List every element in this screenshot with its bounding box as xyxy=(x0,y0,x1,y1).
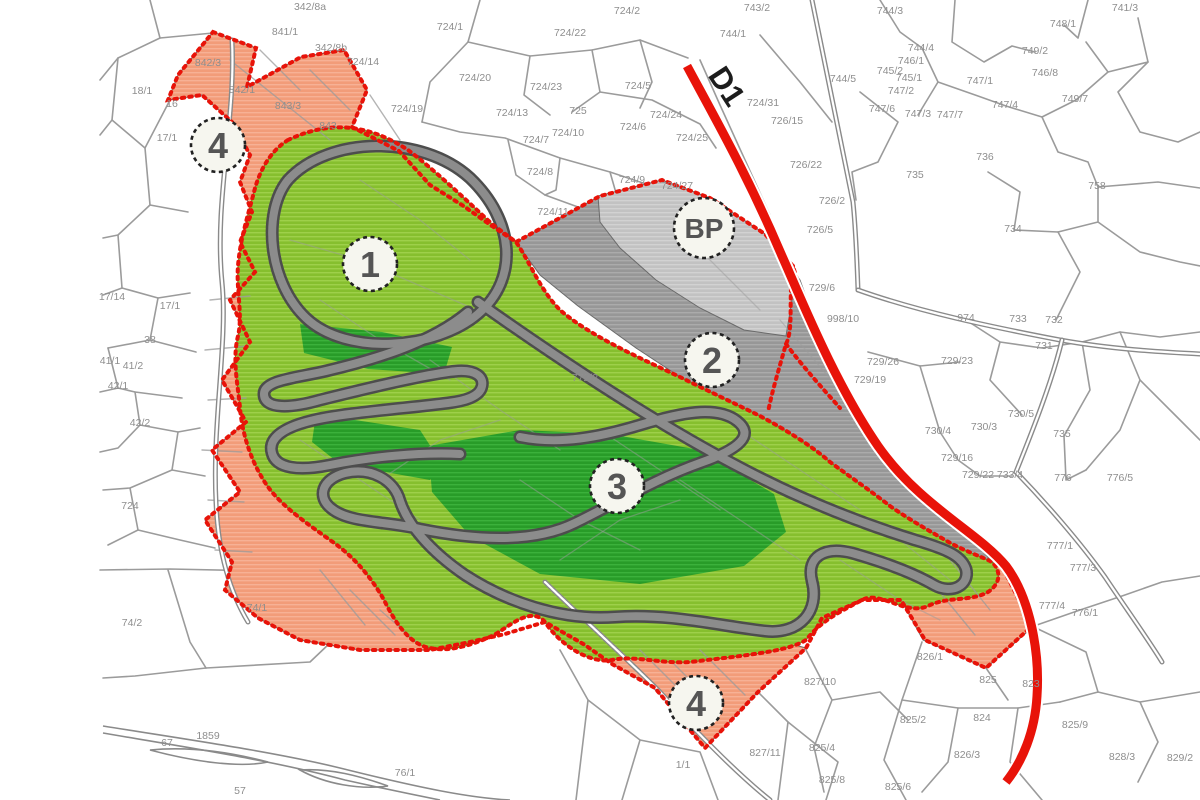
zone-marker-label: 4 xyxy=(208,125,228,166)
parcel-label: 724/10 xyxy=(552,127,584,139)
parcel-label: 747/4 xyxy=(992,99,1018,111)
parcel-label: 342/8b xyxy=(315,42,347,54)
parcel-label: 729/16 xyxy=(941,452,973,464)
parcel-label: 724/8 xyxy=(527,166,553,178)
parcel-label: 777/3 xyxy=(1070,562,1096,574)
parcel-label: 17/1 xyxy=(157,132,178,144)
zone-marker-4: 4 xyxy=(669,676,723,730)
parcel-label: 824 xyxy=(973,712,991,724)
parcel-label: 730/5 xyxy=(1008,408,1034,420)
parcel-label: 726/5 xyxy=(807,224,833,236)
parcel-label: 729/26 xyxy=(867,356,899,368)
parcel-label: 741/3 xyxy=(1112,2,1138,14)
parcel-label: 725 xyxy=(569,105,587,117)
parcel-label: 998/10 xyxy=(827,313,859,325)
parcel-label: 342/8a xyxy=(294,1,326,13)
parcel-label: 747/6 xyxy=(869,103,895,115)
parcel-label: 726/2 xyxy=(819,195,845,207)
parcel-label: 724/13 xyxy=(496,107,528,119)
zone-marker-label: 4 xyxy=(686,683,706,724)
parcel-label: 724/9 xyxy=(619,174,645,186)
parcel-label: 776/5 xyxy=(1107,472,1133,484)
parcel-label: 776 xyxy=(1054,472,1072,484)
parcel-label: 724/1 xyxy=(437,21,463,33)
parcel-label: 827/11 xyxy=(749,747,780,759)
parcel-label: 1/1 xyxy=(676,759,691,771)
parcel-label: 744/3 xyxy=(877,5,903,17)
parcel-label: 735 xyxy=(1053,428,1071,440)
parcel-label: 734 xyxy=(1004,223,1022,235)
parcel-label: 724/20 xyxy=(459,72,491,84)
parcel-label: 826/1 xyxy=(917,651,943,663)
parcel-label: 747/2 xyxy=(888,85,914,97)
parcel-label: 825 xyxy=(979,674,997,686)
parcel-label: 41/2 xyxy=(123,360,144,372)
zone-marker-label: BP xyxy=(685,213,724,244)
parcel-label: 76/1 xyxy=(395,767,416,779)
parcel-label: 724/6 xyxy=(620,121,646,133)
zone-marker-3: 3 xyxy=(590,459,644,513)
zone-marker-bp: BP xyxy=(674,198,734,258)
parcel-label: 823 xyxy=(1022,678,1040,690)
parcel-label: 735 xyxy=(906,169,924,181)
parcel-label: 736 xyxy=(976,151,994,163)
cadastral-map: 342/8a342/8b841/1724/1418/1842/3842/1843… xyxy=(0,0,1200,800)
parcel-label: 74/1 xyxy=(247,602,268,614)
parcel-label: 758 xyxy=(1088,180,1106,192)
parcel-label: 724/11 xyxy=(537,206,568,218)
parcel-label: 825/8 xyxy=(819,774,845,786)
parcel-label: 747/7 xyxy=(937,109,963,121)
parcel-label: 724/5 xyxy=(625,80,651,92)
parcel-label: 730/4 xyxy=(925,425,951,437)
parcel-label: 828/3 xyxy=(1109,751,1135,763)
parcel-label: 749/2 xyxy=(1022,45,1048,57)
parcel-label: 843/3 xyxy=(275,100,301,112)
parcel-label: 74/2 xyxy=(122,617,143,629)
parcel-label: 729/23 xyxy=(941,355,973,367)
parcel-label: 1859 xyxy=(196,730,220,742)
parcel-label: 724/2 xyxy=(614,5,640,17)
parcel-label: 745/1 xyxy=(896,72,922,84)
parcel-label: 733/4 xyxy=(997,469,1023,481)
parcel-label: 729/6 xyxy=(809,282,835,294)
parcel-label: 724/19 xyxy=(391,103,423,115)
map-canvas: 342/8a342/8b841/1724/1418/1842/3842/1843… xyxy=(0,0,1200,800)
parcel-label: 730/3 xyxy=(971,421,997,433)
parcel-label: 748/1 xyxy=(1050,18,1076,30)
parcel-label: 726/15 xyxy=(771,115,803,127)
parcel-label: 726/22 xyxy=(790,159,822,171)
parcel-label: 776/1 xyxy=(1072,607,1098,619)
parcel-label: 724/7 xyxy=(523,134,549,146)
parcel-label: 731 xyxy=(1035,340,1053,352)
parcel-label: 829/2 xyxy=(1167,752,1193,764)
parcel-label: 842/3 xyxy=(195,57,221,69)
parcel-label: 57 xyxy=(234,785,246,797)
parcel-label: 724/25 xyxy=(676,132,708,144)
parcel-label: 724/14 xyxy=(347,56,379,68)
zone-marker-4: 4 xyxy=(191,118,245,172)
parcel-label: 42/1 xyxy=(108,380,129,392)
parcel-label: 825/6 xyxy=(885,781,911,793)
parcel-label: 724/22 xyxy=(554,27,586,39)
parcel-label: 825/4 xyxy=(809,742,835,754)
parcel-label: 729/22 xyxy=(962,469,994,481)
parcel-label: 842/1 xyxy=(229,84,255,96)
parcel-label: 747/3 xyxy=(905,108,931,120)
parcel-label: 772/2 xyxy=(572,372,598,384)
parcel-label: 733 xyxy=(1009,313,1027,325)
parcel-label: 827/10 xyxy=(804,676,836,688)
parcel-label: 724/31 xyxy=(747,97,779,109)
parcel-label: 18/1 xyxy=(132,85,153,97)
parcel-label: 744/1 xyxy=(720,28,746,40)
parcel-label: 724/27 xyxy=(661,180,693,192)
parcel-label: 67 xyxy=(161,737,173,749)
parcel-label: 825/2 xyxy=(900,714,926,726)
parcel-label: 17/14 xyxy=(99,291,125,303)
parcel-label: 743/2 xyxy=(744,2,770,14)
zone-marker-label: 1 xyxy=(360,244,380,285)
parcel-label: 724 xyxy=(121,500,139,512)
parcel-label: 777/1 xyxy=(1047,540,1073,552)
parcel-label: 777/4 xyxy=(1039,600,1065,612)
parcel-label: 841/1 xyxy=(272,26,298,38)
parcel-label: 42/2 xyxy=(130,417,151,429)
parcel-label: 732 xyxy=(1045,314,1063,326)
zone-marker-1: 1 xyxy=(343,237,397,291)
parcel-label: 724/24 xyxy=(650,109,682,121)
parcel-label: 974 xyxy=(957,312,975,324)
parcel-label: 16 xyxy=(166,98,178,110)
parcel-label: 747/1 xyxy=(967,75,993,87)
parcel-label: 826/3 xyxy=(954,749,980,761)
parcel-label: 744/5 xyxy=(830,73,856,85)
zone-marker-label: 2 xyxy=(702,340,722,381)
parcel-label: 843 xyxy=(319,120,337,132)
parcel-label: 17/1 xyxy=(160,300,181,312)
parcel-label: 744/4 xyxy=(908,42,934,54)
parcel-label: 729/19 xyxy=(854,374,886,386)
parcel-label: 724/23 xyxy=(530,81,562,93)
zone-marker-label: 3 xyxy=(607,466,627,507)
parcel-label: 825/9 xyxy=(1062,719,1088,731)
parcel-label: 746/8 xyxy=(1032,67,1058,79)
parcel-label: 41/1 xyxy=(100,355,121,367)
parcel-label: 749/7 xyxy=(1062,93,1088,105)
parcel-label: 38 xyxy=(144,334,156,346)
zone-marker-2: 2 xyxy=(685,333,739,387)
